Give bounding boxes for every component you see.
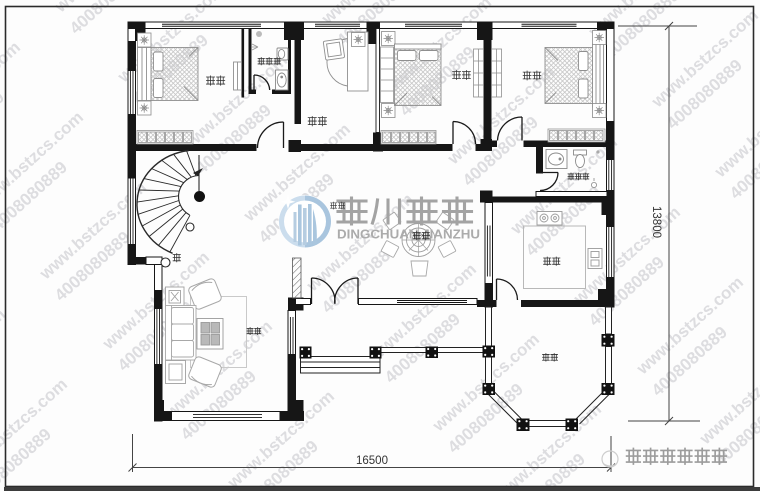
svg-text:DINGCHUAN JIANZHU: DINGCHUAN JIANZHU [337,227,480,242]
svg-text:16500: 16500 [356,455,388,467]
svg-text:13800: 13800 [650,206,662,238]
